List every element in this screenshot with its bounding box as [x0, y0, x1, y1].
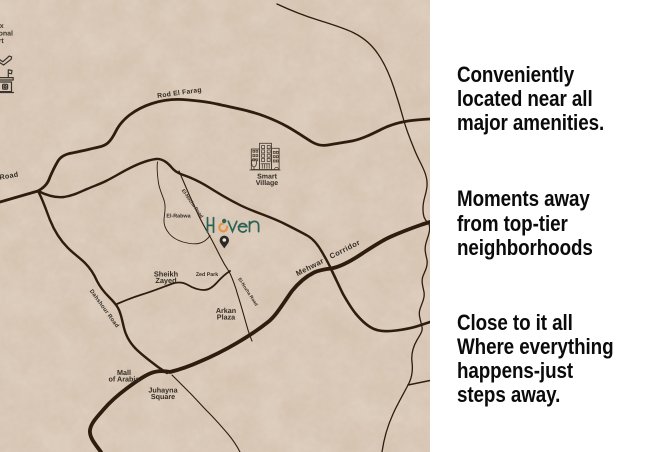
svg-text:International: International — [0, 30, 13, 38]
svg-text:Sphinx: Sphinx — [0, 22, 4, 30]
svg-text:Zayed: Zayed — [155, 276, 177, 285]
svg-text:Plaza: Plaza — [217, 313, 236, 322]
svg-text:El-Rabwa: El-Rabwa — [166, 214, 191, 220]
svg-text:Village: Village — [256, 179, 279, 187]
svg-text:of Arabia: of Arabia — [109, 375, 141, 384]
svg-text:Zed Park: Zed Park — [196, 272, 218, 278]
svg-text:Square: Square — [151, 392, 175, 401]
